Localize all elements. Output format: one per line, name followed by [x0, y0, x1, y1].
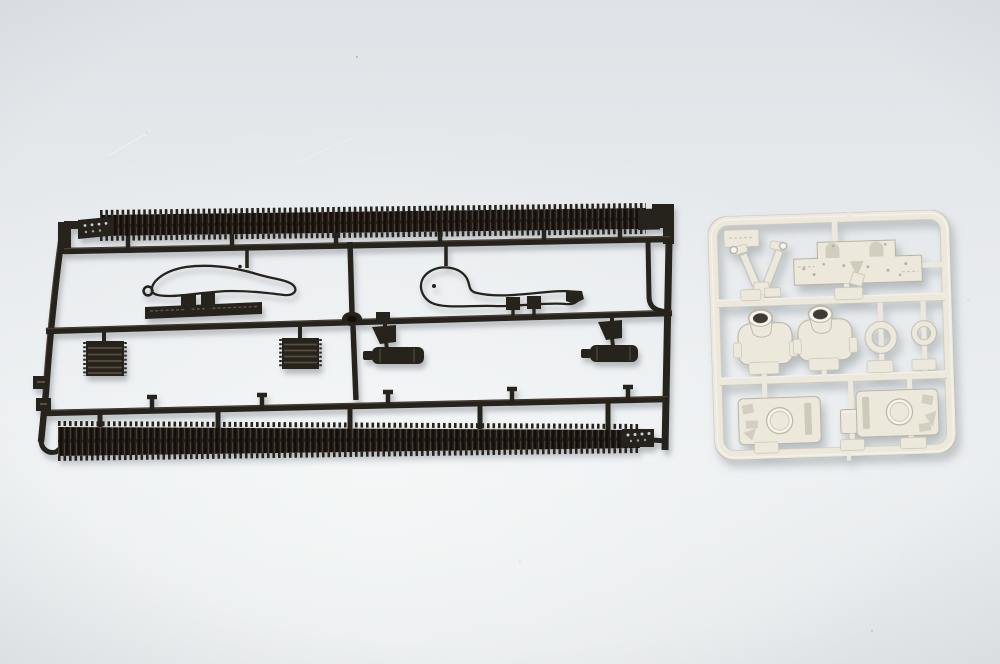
photo-canvas [0, 0, 1000, 664]
v-arm-ring-right [779, 242, 786, 249]
ring-number-tab [912, 359, 936, 371]
muffler-pipe [581, 349, 591, 358]
roof-number-tab [754, 442, 778, 454]
cable-stud [238, 265, 242, 269]
right-runner [665, 243, 669, 450]
lower-track-seam [58, 439, 640, 441]
turret-skirt-right [849, 337, 857, 352]
center-junction-hole [347, 316, 357, 322]
grille-block [86, 341, 124, 376]
cable-stud [432, 284, 436, 288]
muffler-stem [612, 338, 613, 346]
deck-number-tab [835, 287, 863, 300]
upper-track-right-tab [638, 209, 660, 231]
cable-clamp-1 [181, 294, 196, 307]
muffler-pipe [363, 351, 373, 360]
corner-tab [724, 229, 760, 247]
photo [0, 0, 1000, 664]
v-arm-ring-left [730, 246, 737, 253]
roof-hatch-lid [770, 411, 790, 431]
roof-slot [804, 403, 812, 435]
v-number-tab [741, 289, 761, 301]
roof-slot [862, 397, 870, 429]
lower-track-end-tab [622, 429, 654, 447]
turret-number-tab [749, 362, 779, 375]
turret-skirt-left [793, 339, 801, 354]
upper-track-end-tab [78, 217, 114, 240]
ring-number-tab [867, 360, 893, 373]
center-vertical-upper [350, 242, 352, 312]
roof-number-tab [900, 437, 926, 449]
center-vertical-lower [353, 326, 356, 400]
roof-gate-up [764, 382, 765, 399]
v-base-foot [764, 288, 780, 297]
junction-side-block [376, 312, 390, 323]
turret-number-tab [809, 358, 839, 371]
box-gate-up [850, 379, 851, 410]
bottom-right-link [652, 440, 666, 441]
runner-top-center [834, 222, 835, 243]
grille-block [282, 338, 319, 369]
cable-clamp-2 [201, 293, 215, 306]
turret-skirt-left [733, 343, 741, 358]
roof-hatch-lid [890, 402, 910, 422]
box-number-tab [840, 439, 864, 451]
cable-clamp-1 [506, 297, 520, 310]
cable-clamp-2 [527, 296, 541, 309]
runner-plate-right [920, 264, 943, 265]
ring-large [865, 321, 899, 373]
